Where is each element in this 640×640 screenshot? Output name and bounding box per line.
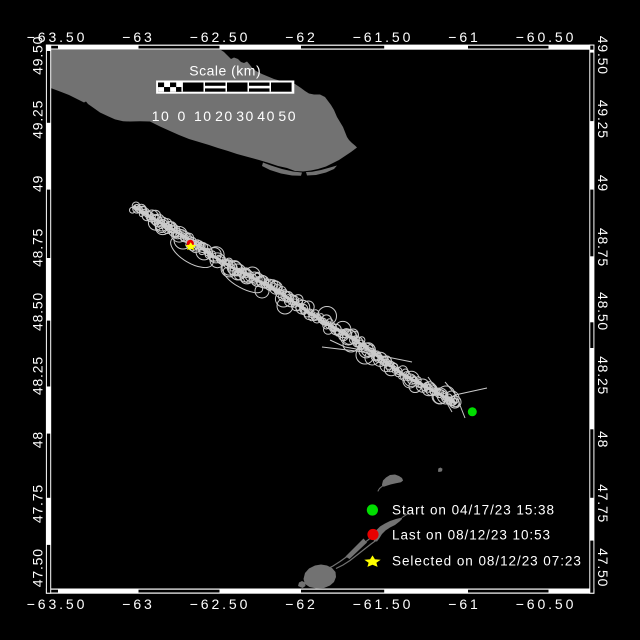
svg-text:10: 10 xyxy=(152,108,171,124)
svg-text:30: 30 xyxy=(236,108,255,124)
svg-text:48.50: 48.50 xyxy=(595,292,611,331)
svg-text:−63: −63 xyxy=(122,596,154,612)
svg-text:48: 48 xyxy=(30,431,46,448)
svg-text:49.25: 49.25 xyxy=(30,100,46,139)
svg-text:−60.50: −60.50 xyxy=(516,29,577,45)
svg-text:Last on 08/12/23 10:53: Last on 08/12/23 10:53 xyxy=(392,527,551,542)
svg-text:48.75: 48.75 xyxy=(30,228,46,267)
svg-text:47.75: 47.75 xyxy=(30,484,46,523)
svg-text:10: 10 xyxy=(194,108,213,124)
svg-text:48.75: 48.75 xyxy=(595,228,611,267)
svg-text:47.75: 47.75 xyxy=(595,484,611,523)
svg-text:48.50: 48.50 xyxy=(30,292,46,331)
svg-text:−63: −63 xyxy=(122,29,154,45)
svg-text:47.50: 47.50 xyxy=(595,548,611,587)
svg-text:47.50: 47.50 xyxy=(30,548,46,587)
svg-text:−60.50: −60.50 xyxy=(516,596,577,612)
svg-text:Selected on 08/12/23 07:23: Selected on 08/12/23 07:23 xyxy=(392,553,582,568)
svg-text:50: 50 xyxy=(278,108,297,124)
svg-text:49: 49 xyxy=(30,175,46,192)
svg-text:−62: −62 xyxy=(285,596,317,612)
svg-text:−61.50: −61.50 xyxy=(353,29,414,45)
svg-text:Scale (km): Scale (km) xyxy=(189,63,261,79)
svg-text:−61: −61 xyxy=(448,29,480,45)
svg-text:−63.50: −63.50 xyxy=(27,596,88,612)
svg-text:−62: −62 xyxy=(285,29,317,45)
svg-text:−62.50: −62.50 xyxy=(190,29,251,45)
svg-text:40: 40 xyxy=(257,108,276,124)
svg-text:20: 20 xyxy=(215,108,234,124)
svg-text:49: 49 xyxy=(595,175,611,192)
svg-text:0: 0 xyxy=(178,108,187,124)
svg-text:49.50: 49.50 xyxy=(595,36,611,75)
svg-text:−62.50: −62.50 xyxy=(190,596,251,612)
svg-text:49.50: 49.50 xyxy=(30,36,46,75)
svg-text:48: 48 xyxy=(595,431,611,448)
svg-text:Start on 04/17/23 15:38: Start on 04/17/23 15:38 xyxy=(392,502,555,517)
svg-text:48.25: 48.25 xyxy=(30,356,46,395)
svg-text:−61: −61 xyxy=(448,596,480,612)
svg-text:−61.50: −61.50 xyxy=(353,596,414,612)
svg-text:48.25: 48.25 xyxy=(595,356,611,395)
svg-text:49.25: 49.25 xyxy=(595,100,611,139)
